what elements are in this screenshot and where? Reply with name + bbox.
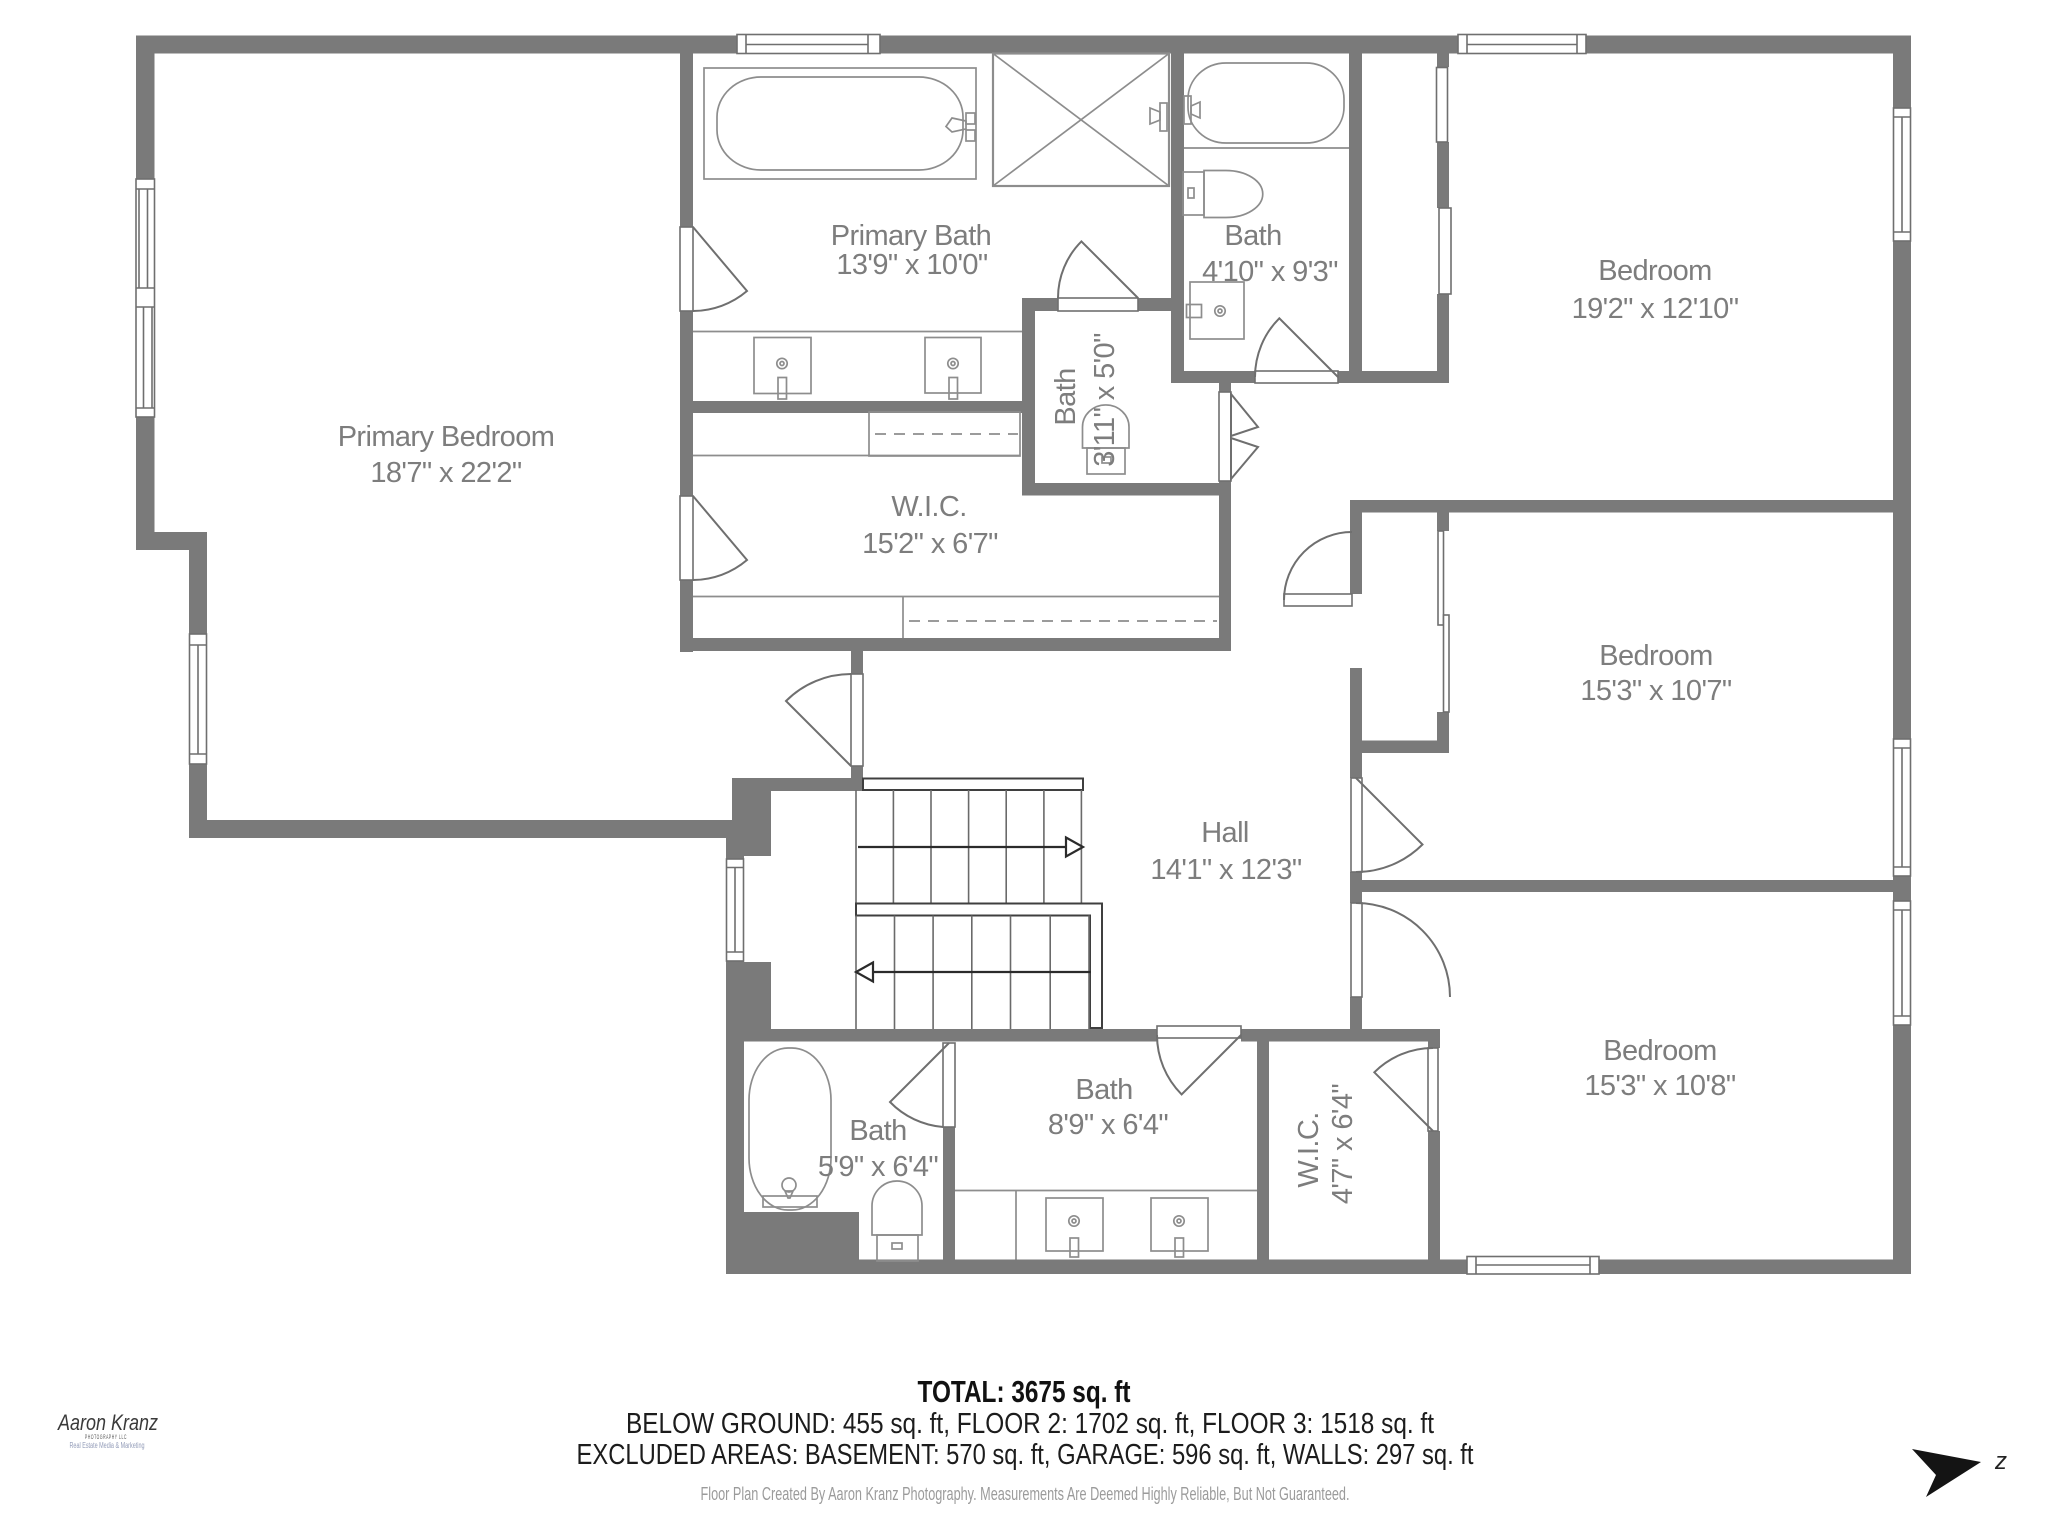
svg-text:Floor Plan Created By Aaron Kr: Floor Plan Created By Aaron Kranz Photog… <box>701 1484 1350 1504</box>
svg-text:Real Estate Media & Marketing: Real Estate Media & Marketing <box>70 1441 145 1450</box>
svg-text:4'7" x 6'4": 4'7" x 6'4" <box>1327 1084 1359 1204</box>
svg-text:15'3" x 10'7": 15'3" x 10'7" <box>1580 675 1732 707</box>
svg-text:Primary Bath: Primary Bath <box>831 220 991 252</box>
svg-text:W.I.C.: W.I.C. <box>891 491 966 523</box>
svg-text:BELOW GROUND: 455 sq. ft, FLOO: BELOW GROUND: 455 sq. ft, FLOOR 2: 1702 … <box>626 1408 1434 1440</box>
svg-text:19'2" x 12'10": 19'2" x 12'10" <box>1572 293 1739 325</box>
svg-text:EXCLUDED AREAS: BASEMENT: 570: EXCLUDED AREAS: BASEMENT: 570 sq. ft, GA… <box>577 1439 1474 1471</box>
svg-text:Bath: Bath <box>849 1115 906 1147</box>
svg-text:Bedroom: Bedroom <box>1599 640 1712 672</box>
svg-text:Hall: Hall <box>1201 817 1249 849</box>
svg-text:Bedroom: Bedroom <box>1598 255 1711 287</box>
svg-text:18'7" x 22'2": 18'7" x 22'2" <box>370 457 522 489</box>
svg-text:3'11" x 5'0": 3'11" x 5'0" <box>1089 333 1121 467</box>
svg-text:15'2" x 6'7": 15'2" x 6'7" <box>862 528 998 560</box>
svg-text:TOTAL: 3675 sq. ft: TOTAL: 3675 sq. ft <box>918 1374 1131 1409</box>
svg-text:Bath: Bath <box>1075 1074 1132 1106</box>
svg-text:8'9" x 6'4": 8'9" x 6'4" <box>1048 1109 1168 1141</box>
svg-text:13'9" x 10'0": 13'9" x 10'0" <box>836 249 988 281</box>
svg-text:Bath: Bath <box>1224 220 1281 252</box>
svg-text:Aaron Kranz: Aaron Kranz <box>56 1410 158 1435</box>
svg-text:Primary Bedroom: Primary Bedroom <box>338 421 555 453</box>
svg-text:14'1" x 12'3": 14'1" x 12'3" <box>1150 854 1302 886</box>
svg-text:5'9" x 6'4": 5'9" x 6'4" <box>818 1151 938 1183</box>
svg-text:Bedroom: Bedroom <box>1603 1035 1716 1067</box>
svg-text:z: z <box>1994 1448 2007 1475</box>
svg-text:15'3" x 10'8": 15'3" x 10'8" <box>1584 1070 1736 1102</box>
svg-text:Bath: Bath <box>1050 368 1082 425</box>
svg-text:4'10" x 9'3": 4'10" x 9'3" <box>1202 256 1338 288</box>
svg-text:W.I.C.: W.I.C. <box>1293 1112 1325 1187</box>
